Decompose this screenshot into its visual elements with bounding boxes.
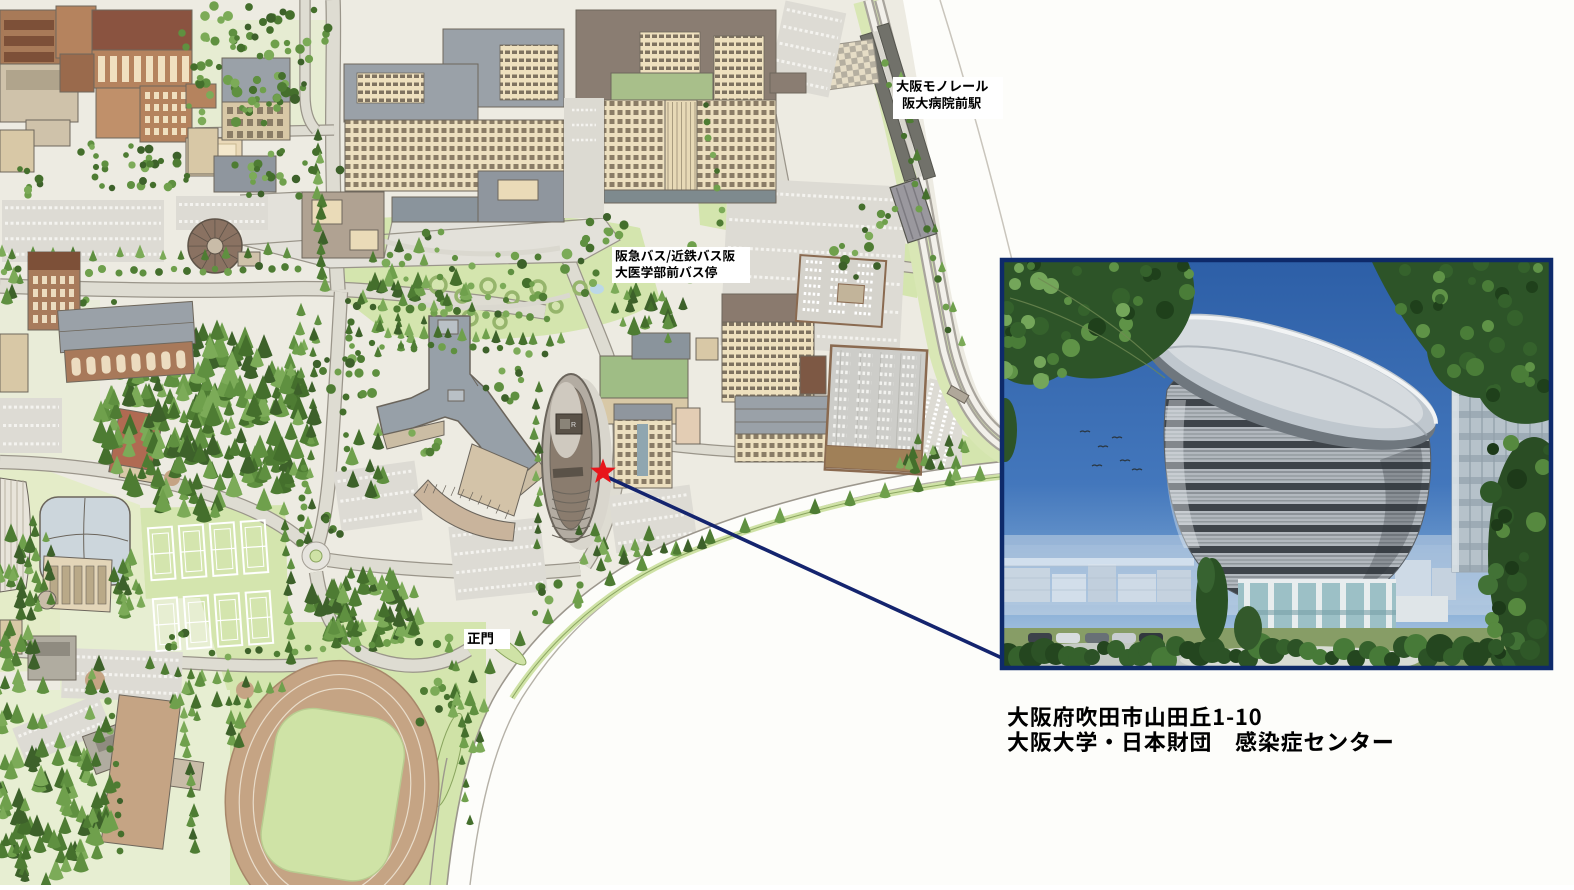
- svg-text:R: R: [571, 422, 576, 429]
